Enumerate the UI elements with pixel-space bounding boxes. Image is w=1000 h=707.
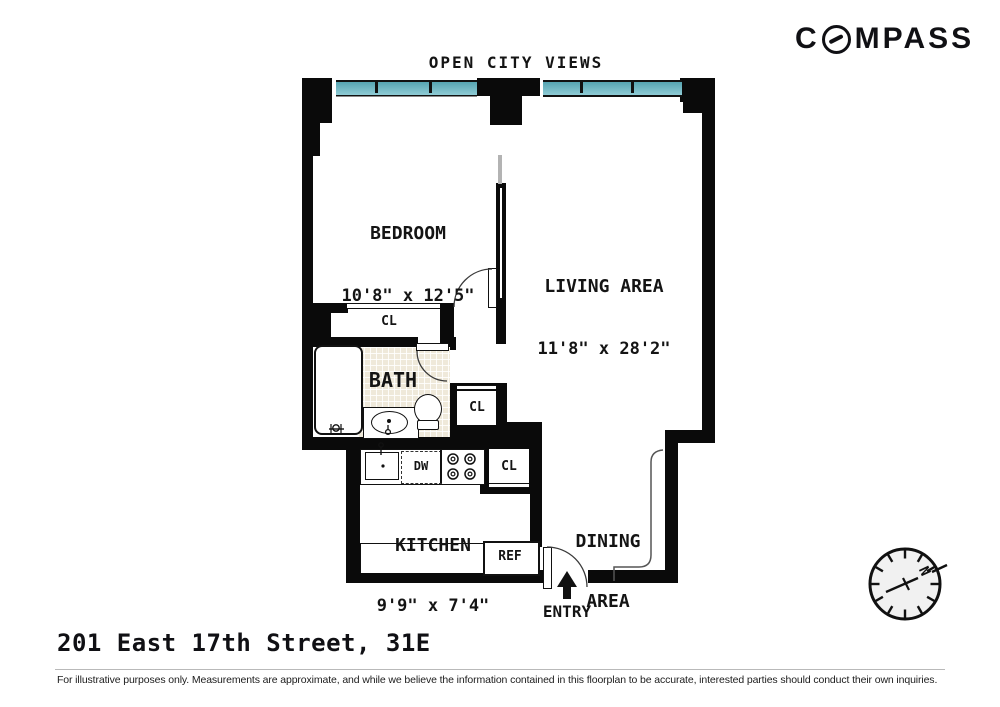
bedroom-name: BEDROOM [341,223,474,244]
sink-faucet-icon [379,443,385,468]
floorplan-page: C MPASS OPEN CITY VIEWS [0,0,1000,707]
dishwasher-label: DW [414,459,428,473]
footer-divider [55,669,945,670]
hall-closet-label: CL [469,400,485,415]
bath-label: BATH [369,368,417,392]
vanity-faucet-icon [386,425,391,434]
refrigerator-label: REF [498,549,521,564]
plan-overlay: N [0,0,1000,707]
entry-label: ENTRY [543,602,591,621]
disclaimer-text: For illustrative purposes only. Measurem… [57,674,952,686]
bedroom-closet-label: CL [381,314,397,329]
dining-line1: DINING [575,532,640,552]
bath-door-arc [417,351,447,381]
dining-area-label: DINING AREA [575,492,640,652]
kitchen-dims: 9'9" x 7'4" [377,596,490,616]
entry-arrow-icon [557,571,577,587]
living-area-name: LIVING AREA [537,276,670,297]
kitchen-closet-label: CL [501,459,517,474]
entry-arrow-stem [563,587,571,599]
stove-burners-icon [448,454,475,479]
kitchen-name: KITCHEN [377,536,490,556]
compass-rose: N [870,549,947,619]
address-title: 201 East 17th Street, 31E [57,629,431,657]
living-area-label: LIVING AREA 11'8" x 28'2" [537,234,670,402]
tub-faucet-icon [329,424,344,433]
bedroom-dims: 10'8" x 12'5" [341,286,474,307]
bedroom-label: BEDROOM 10'8" x 12'5" [341,181,474,349]
living-area-dims: 11'8" x 28'2" [537,339,670,360]
